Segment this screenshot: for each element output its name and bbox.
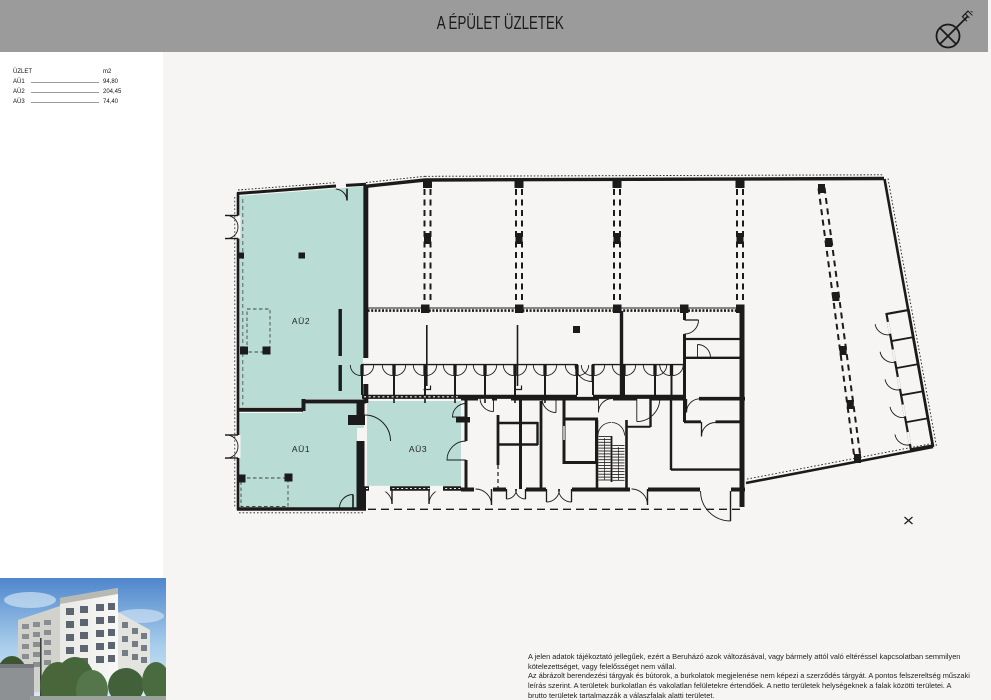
svg-text:AÜ1: AÜ1 bbox=[292, 444, 310, 454]
svg-text:AÜ3: AÜ3 bbox=[409, 444, 427, 454]
svg-text:AÜ2: AÜ2 bbox=[292, 316, 310, 326]
